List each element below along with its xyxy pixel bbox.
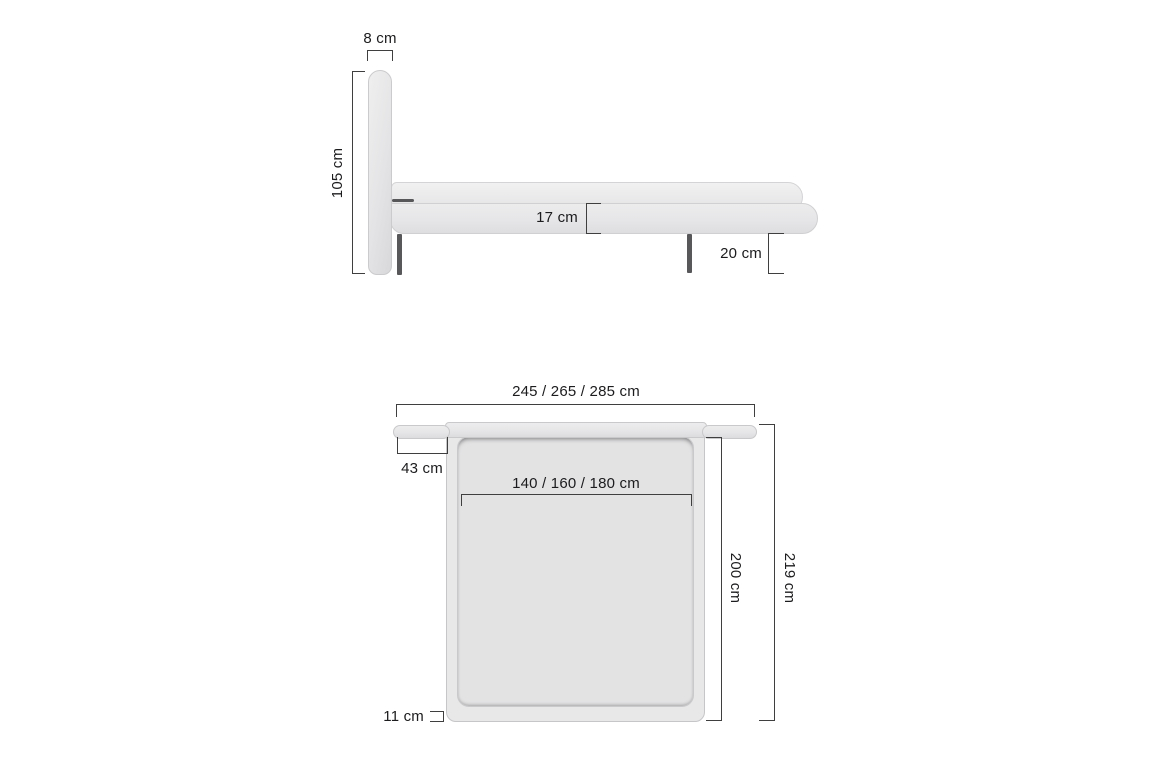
dim-mattress-width-label: 140 / 160 / 180 cm xyxy=(456,475,696,493)
dim-overall-length-label: 219 cm xyxy=(780,543,798,613)
dim-rail-width-bracket xyxy=(430,711,444,722)
dim-clearance-label: 20 cm xyxy=(682,245,762,263)
dim-wing-width-bracket xyxy=(397,437,448,454)
dim-mattress-length-bracket xyxy=(706,437,722,721)
dim-headboard-thickness-label: 8 cm xyxy=(340,30,420,48)
dim-headboard-height-bracket xyxy=(352,71,365,274)
side-view-frame-rail xyxy=(390,203,818,234)
dim-rail-width-label: 11 cm xyxy=(344,708,424,726)
side-view-front-leg xyxy=(397,234,402,275)
side-view: 8 cm 105 cm 17 cm 20 cm xyxy=(0,0,1152,330)
dim-frame-height-bracket xyxy=(586,203,601,234)
top-view: 245 / 265 / 285 cm 43 cm 140 / 160 / 180… xyxy=(0,330,1152,768)
dim-overall-length-bracket xyxy=(759,424,775,721)
dim-headboard-thickness-bracket xyxy=(367,50,393,61)
dim-wing-width-label: 43 cm xyxy=(382,460,462,478)
dim-mattress-width-bracket xyxy=(461,494,692,506)
top-view-headboard-center xyxy=(445,422,707,438)
bed-dimensions-diagram: 8 cm 105 cm 17 cm 20 cm 245 / 265 / 285 … xyxy=(0,0,1152,768)
dim-headboard-height-label: 105 cm xyxy=(329,138,347,208)
dim-frame-height-label: 17 cm xyxy=(498,209,578,227)
side-view-mattress-seam xyxy=(392,199,414,202)
dim-overall-width-bracket xyxy=(396,404,755,417)
side-view-headboard xyxy=(368,70,392,275)
dim-clearance-bracket xyxy=(768,233,784,274)
dim-mattress-length-label: 200 cm xyxy=(726,543,744,613)
dim-overall-width-label: 245 / 265 / 285 cm xyxy=(396,383,756,401)
